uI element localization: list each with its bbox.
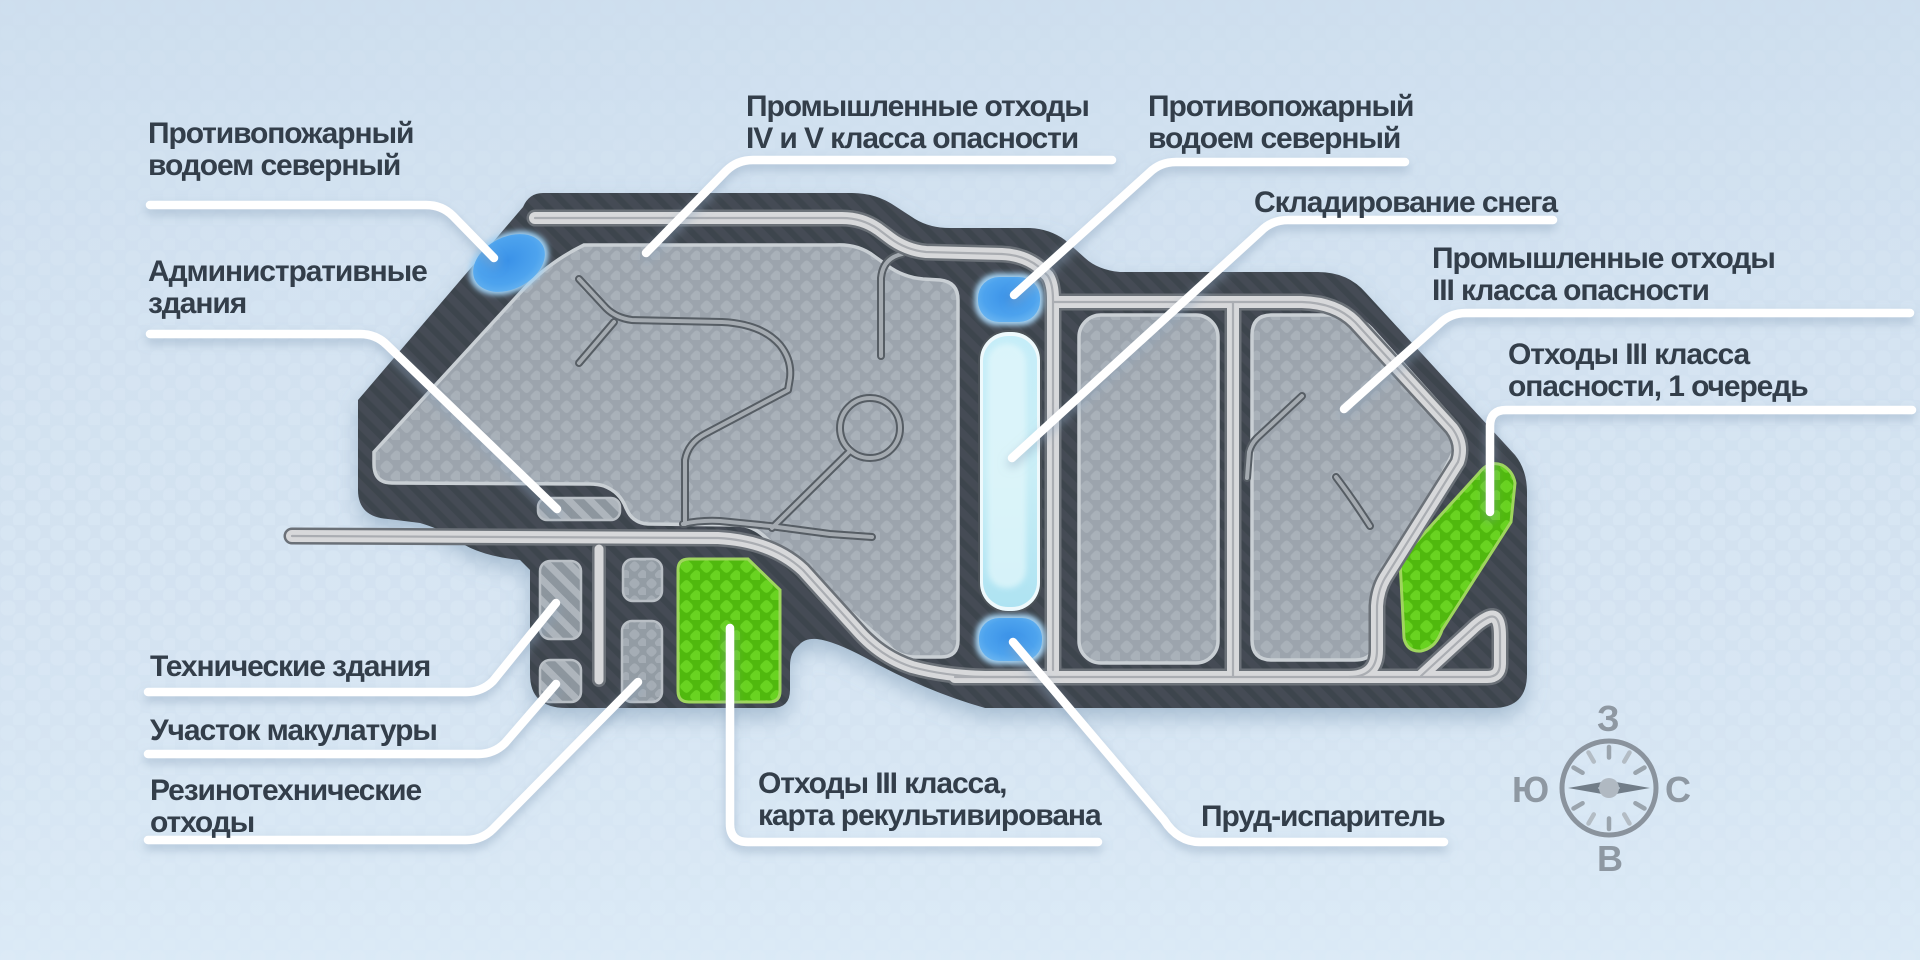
svg-text:IV и V класса опасности: IV и V класса опасности bbox=[746, 122, 1078, 155]
svg-text:Административные: Административные bbox=[148, 255, 427, 288]
svg-text:Промышленные отходы: Промышленные отходы bbox=[746, 90, 1089, 123]
svg-text:Участок макулатуры: Участок макулатуры bbox=[150, 714, 437, 747]
svg-text:З: З bbox=[1597, 698, 1620, 739]
svg-text:здания: здания bbox=[148, 287, 246, 320]
svg-text:отходы: отходы bbox=[150, 806, 254, 839]
svg-text:Отходы III класса: Отходы III класса bbox=[1508, 338, 1750, 371]
svg-text:Пруд-испаритель: Пруд-испаритель bbox=[1201, 800, 1445, 833]
svg-text:Ю: Ю bbox=[1512, 769, 1549, 810]
svg-text:карта рекультивирована: карта рекультивирована bbox=[758, 799, 1102, 832]
svg-text:С: С bbox=[1665, 769, 1691, 810]
svg-text:Противопожарный: Противопожарный bbox=[1148, 90, 1413, 123]
svg-text:опасности, 1 очередь: опасности, 1 очередь bbox=[1508, 370, 1808, 403]
svg-text:III класса опасности: III класса опасности bbox=[1432, 274, 1709, 307]
svg-text:В: В bbox=[1597, 838, 1623, 879]
svg-text:Противопожарный: Противопожарный bbox=[148, 117, 413, 150]
svg-text:Складирование снега: Складирование снега bbox=[1254, 186, 1558, 219]
svg-text:водоем северный: водоем северный bbox=[1148, 122, 1400, 155]
svg-text:Промышленные отходы: Промышленные отходы bbox=[1432, 242, 1775, 275]
svg-text:Отходы III класса,: Отходы III класса, bbox=[758, 767, 1006, 800]
svg-text:Технические здания: Технические здания bbox=[150, 650, 430, 683]
svg-text:Резинотехнические: Резинотехнические bbox=[150, 774, 421, 807]
svg-text:водоем северный: водоем северный bbox=[148, 149, 400, 182]
